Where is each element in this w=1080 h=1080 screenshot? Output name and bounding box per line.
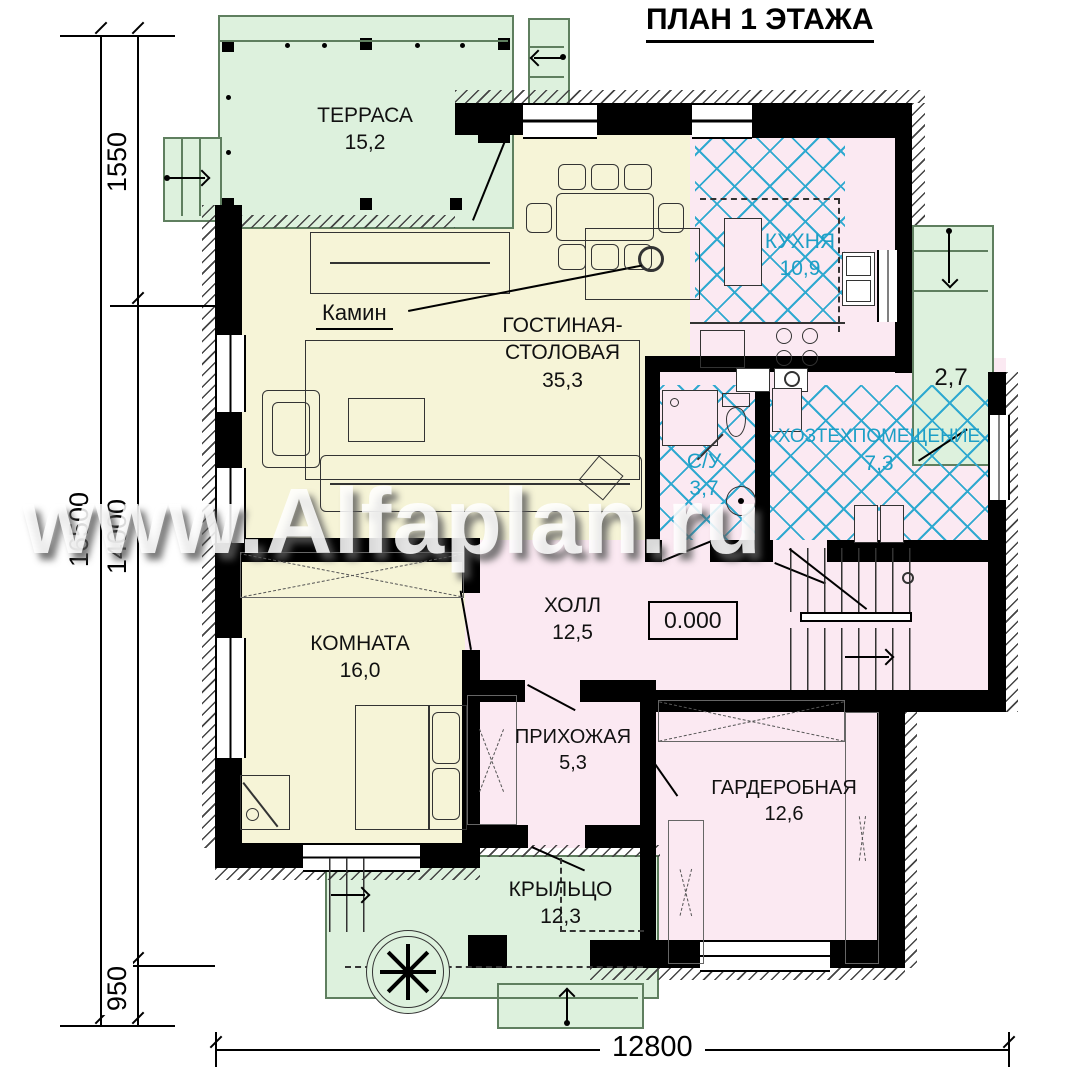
wall	[585, 825, 640, 848]
console-shelf-line	[330, 262, 490, 264]
porch-column	[468, 935, 507, 968]
room-area: 10,9	[738, 255, 862, 282]
terrace-post-dot	[285, 43, 290, 48]
room-name: ГОСТИНАЯ-	[455, 312, 670, 339]
dishwasher	[700, 330, 745, 368]
label-terrace: ТЕРРАСА 15,2	[280, 102, 450, 157]
steps-line	[530, 76, 564, 78]
room-area: 35,3	[455, 367, 670, 394]
terrace-post-dot	[415, 43, 420, 48]
dim-value-12800: 12800	[600, 1031, 705, 1064]
dim-ext	[215, 1032, 217, 1067]
dresser	[240, 775, 290, 830]
chair	[591, 244, 619, 270]
label-living: ГОСТИНАЯ- СТОЛОВАЯ 35,3	[455, 312, 670, 394]
arrow-dot	[564, 1020, 570, 1026]
stairs-post	[902, 572, 914, 584]
dim-ext	[1008, 1032, 1010, 1067]
room-name: ТЕРРАСА	[280, 102, 450, 129]
stairs-upper-flight	[790, 548, 912, 612]
wall	[465, 825, 528, 848]
terrace-inner-line	[220, 40, 508, 42]
stool	[246, 808, 259, 821]
label-bedroom: КОМНАТА 16,0	[280, 630, 440, 685]
dim-value-1550: 1550	[102, 128, 133, 196]
wall	[752, 103, 912, 138]
floor-plan: ПЛАН 1 ЭТАЖА	[0, 0, 1080, 1080]
dim-tick	[132, 22, 145, 35]
dim-ext	[110, 305, 215, 307]
wall	[895, 103, 912, 373]
sink-basin	[846, 280, 871, 302]
stove-burner	[802, 328, 818, 344]
terrace-post-dot	[226, 95, 231, 100]
wall	[988, 500, 1006, 712]
hatch-terrace-bottom	[218, 215, 455, 228]
shower-drain	[670, 398, 679, 407]
label-utility: ХОЗТЕХПОМЕЩЕНИЕ 7,3	[770, 425, 988, 477]
room-area: 2,7	[912, 362, 990, 393]
wall	[215, 758, 242, 848]
terrace-post-dot	[226, 150, 231, 155]
room-name: КУХНЯ	[738, 228, 862, 255]
entry-step	[914, 290, 988, 292]
elevation-mark: 0.000	[648, 601, 738, 640]
stove-burner	[802, 350, 818, 366]
dim-ext	[60, 35, 175, 37]
terrace-column	[450, 198, 462, 210]
armchair-seat	[272, 402, 310, 456]
stove-burner	[776, 328, 792, 344]
terrace-post-dot	[460, 43, 465, 48]
hatch-right-upper	[912, 103, 925, 225]
counter-edge	[690, 322, 845, 324]
chair	[624, 244, 652, 270]
window	[215, 638, 246, 758]
fireplace-label: Камин	[316, 300, 393, 330]
hatch-top	[455, 90, 925, 103]
room-area: 12,6	[690, 801, 878, 827]
room-name: ГАРДЕРОБНАЯ	[690, 775, 878, 801]
page-title: ПЛАН 1 ЭТАЖА	[646, 3, 874, 43]
label-dressing: ГАРДЕРОБНАЯ 12,6	[690, 775, 878, 827]
porch-bottom-steps	[497, 983, 644, 1029]
label-side-entry: 2,7	[912, 362, 990, 393]
chair	[591, 164, 619, 190]
chair	[558, 244, 586, 270]
entry-step	[914, 250, 988, 252]
label-entrance-hall: ПРИХОЖАЯ 5,3	[498, 724, 648, 776]
room-area: 15,2	[280, 129, 450, 156]
dining-table	[556, 193, 654, 241]
window	[523, 103, 597, 139]
toilet-tank	[722, 393, 750, 407]
dim-value-950: 950	[102, 962, 133, 1015]
equipment	[880, 505, 904, 543]
room-name: СТОЛОВАЯ	[455, 339, 670, 366]
wall	[597, 103, 692, 135]
arrow-dot	[560, 54, 566, 60]
room-area: 12,3	[478, 903, 643, 930]
pillow	[432, 712, 460, 764]
wall	[215, 843, 305, 868]
dim-ext	[60, 1025, 175, 1027]
label-hall: ХОЛЛ 12,5	[505, 592, 640, 647]
wardrobe-dressing-right	[845, 712, 879, 964]
chair	[658, 203, 684, 233]
room-name: ХОЛЛ	[505, 592, 640, 619]
terrace-column	[360, 198, 372, 210]
window	[692, 103, 752, 139]
counter-dashed-top	[700, 198, 840, 200]
label-porch: КРЫЛЬЦО 12,3	[478, 876, 643, 931]
appliance-grid	[736, 368, 770, 392]
stairs-lower-flight	[790, 628, 912, 690]
equipment	[854, 505, 878, 543]
chair	[624, 164, 652, 190]
room-area: 5,3	[498, 750, 648, 776]
window	[877, 250, 899, 322]
steps-line	[530, 46, 564, 48]
dim-tick	[95, 22, 108, 35]
arrow-dot	[946, 228, 952, 234]
watermark: www.Alfaplan.ru	[22, 468, 762, 575]
terrace-column	[222, 198, 234, 210]
wall	[215, 205, 242, 335]
stove-burner	[776, 350, 792, 366]
wall	[215, 412, 242, 470]
room-area: 16,0	[280, 657, 440, 684]
window	[700, 940, 830, 972]
stairs-handrail	[800, 612, 912, 622]
wardrobe-dressing-top	[658, 700, 845, 742]
pillow	[432, 768, 460, 820]
window	[988, 415, 1010, 500]
window	[215, 335, 246, 412]
wall	[877, 712, 905, 965]
arrow-dot	[164, 175, 170, 181]
wall	[988, 372, 1006, 415]
room-name: КРЫЛЬЦО	[478, 876, 643, 903]
room-name: КОМНАТА	[280, 630, 440, 657]
room-area: 7,3	[770, 450, 988, 477]
label-kitchen: КУХНЯ 10,9	[738, 228, 862, 283]
coffee-table	[348, 398, 425, 442]
room-name: ХОЗТЕХПОМЕЩЕНИЕ	[770, 425, 988, 450]
hatch-right-lower	[905, 712, 917, 968]
chair	[558, 164, 586, 190]
oven-dial	[784, 371, 800, 387]
bed-line	[428, 706, 430, 829]
wardrobe-dressing-left	[668, 820, 704, 964]
room-name: ПРИХОЖАЯ	[498, 724, 648, 750]
room-area: 12,5	[505, 619, 640, 646]
terrace-post-dot	[322, 43, 327, 48]
chair	[526, 203, 552, 233]
